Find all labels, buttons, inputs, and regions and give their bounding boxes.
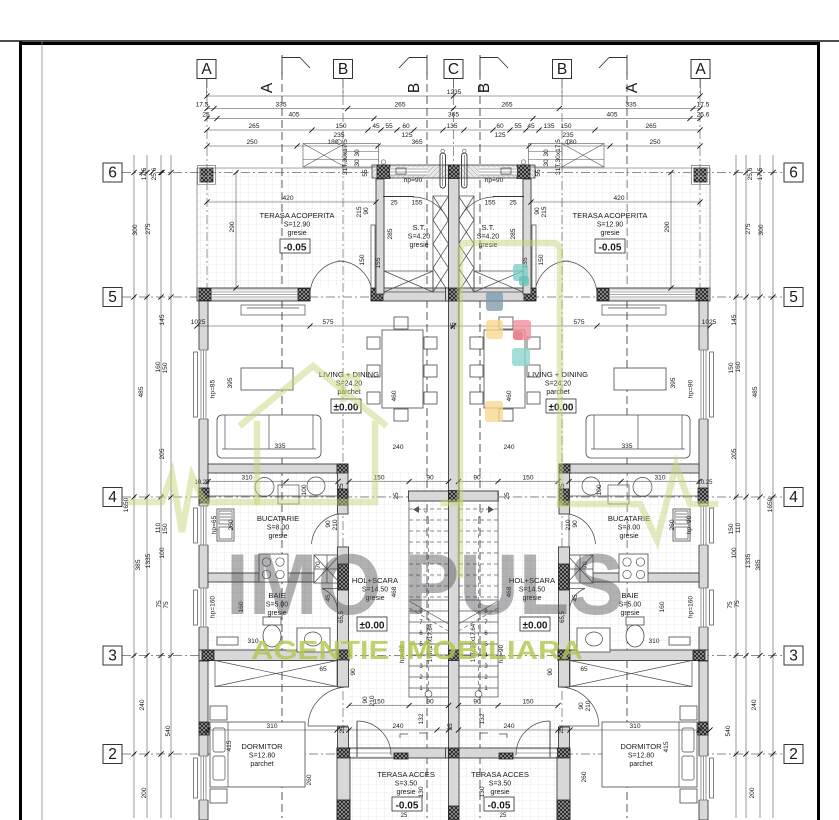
svg-text:160: 160 <box>659 601 666 612</box>
svg-text:1335: 1335 <box>745 553 752 568</box>
svg-text:25: 25 <box>509 200 517 207</box>
svg-text:17.5: 17.5 <box>697 101 710 108</box>
svg-text:25: 25 <box>338 483 345 491</box>
svg-text:100: 100 <box>596 484 603 495</box>
svg-text:420: 420 <box>613 195 624 202</box>
svg-text:25: 25 <box>393 492 400 500</box>
svg-text:275: 275 <box>745 223 752 234</box>
svg-text:hp=160: hp=160 <box>688 596 695 619</box>
svg-text:B: B <box>476 83 493 93</box>
svg-text:TERASA ACOPERITA: TERASA ACOPERITA <box>260 211 336 220</box>
svg-text:310: 310 <box>266 723 277 730</box>
svg-text:100: 100 <box>159 547 166 558</box>
svg-text:17.5: 17.5 <box>141 167 148 180</box>
svg-text:A: A <box>624 82 641 93</box>
svg-text:B: B <box>338 61 348 78</box>
svg-text:90: 90 <box>534 207 541 215</box>
svg-text:405: 405 <box>288 111 299 118</box>
svg-text:215: 215 <box>356 206 363 217</box>
svg-text:65: 65 <box>580 666 588 673</box>
svg-text:460: 460 <box>391 390 398 401</box>
svg-text:240: 240 <box>392 723 403 730</box>
svg-text:575: 575 <box>322 319 333 326</box>
svg-text:205: 205 <box>731 448 738 459</box>
svg-text:1235: 1235 <box>447 89 462 96</box>
svg-text:200: 200 <box>749 787 756 798</box>
svg-text:335: 335 <box>275 101 286 108</box>
svg-text:150: 150 <box>538 254 545 265</box>
svg-text:gresie: gresie <box>396 789 415 796</box>
svg-text:30: 30 <box>543 159 550 167</box>
svg-text:parchet: parchet <box>629 761 652 768</box>
svg-text:25.6: 25.6 <box>747 167 754 180</box>
svg-text:5: 5 <box>108 289 117 306</box>
svg-text:25.6: 25.6 <box>697 111 710 118</box>
svg-text:90: 90 <box>362 696 369 704</box>
svg-text:30: 30 <box>354 159 361 167</box>
svg-text:3: 3 <box>108 648 117 665</box>
svg-text:265: 265 <box>501 101 512 108</box>
svg-text:335: 335 <box>274 443 285 450</box>
svg-text:55: 55 <box>362 169 369 177</box>
svg-text:AGENTIE IMOBILIARA: AGENTIE IMOBILIARA <box>251 635 583 665</box>
svg-text:gresie: gresie <box>490 789 509 796</box>
svg-text:132: 132 <box>418 713 425 724</box>
svg-text:1025: 1025 <box>702 319 717 326</box>
svg-text:gresie: gresie <box>409 242 428 249</box>
svg-text:6: 6 <box>108 165 117 182</box>
svg-text:365: 365 <box>448 111 459 118</box>
svg-text:540: 540 <box>165 725 172 736</box>
svg-text:155: 155 <box>375 257 382 268</box>
svg-text:25: 25 <box>450 322 457 330</box>
svg-text:C: C <box>448 61 459 78</box>
svg-text:132: 132 <box>479 713 486 724</box>
svg-text:210: 210 <box>332 519 339 530</box>
svg-text:300: 300 <box>132 224 139 235</box>
svg-text:260: 260 <box>581 771 588 782</box>
svg-text:S.T.: S.T. <box>481 223 494 232</box>
svg-text:415: 415 <box>226 740 233 751</box>
svg-text:B: B <box>557 61 567 78</box>
svg-text:395: 395 <box>227 377 234 388</box>
svg-text:S=8.00: S=8.00 <box>267 525 289 532</box>
svg-text:B: B <box>406 83 423 93</box>
svg-text:-0.05: -0.05 <box>488 801 511 812</box>
svg-text:265: 265 <box>645 123 656 130</box>
svg-text:240: 240 <box>139 699 146 710</box>
svg-text:250: 250 <box>246 139 257 146</box>
svg-text:385: 385 <box>755 559 762 570</box>
svg-text:210: 210 <box>585 700 592 711</box>
svg-text:365: 365 <box>411 139 422 146</box>
svg-text:55: 55 <box>514 123 522 130</box>
svg-text:TERASA ACCES: TERASA ACCES <box>377 770 435 779</box>
svg-text:150: 150 <box>728 362 735 373</box>
svg-text:25: 25 <box>558 726 565 734</box>
svg-text:310: 310 <box>648 638 659 645</box>
svg-text:160: 160 <box>735 361 742 372</box>
svg-text:90: 90 <box>426 474 434 481</box>
svg-text:25: 25 <box>504 492 511 500</box>
svg-text:75: 75 <box>727 601 734 609</box>
svg-text:A: A <box>259 82 276 93</box>
svg-text:405: 405 <box>606 111 617 118</box>
svg-text:S=4.20: S=4.20 <box>477 234 499 241</box>
svg-text:150: 150 <box>522 698 533 705</box>
svg-text:240: 240 <box>503 444 514 451</box>
svg-text:S=12.80: S=12.80 <box>628 753 654 760</box>
svg-text:6: 6 <box>789 165 798 182</box>
svg-text:240: 240 <box>751 699 758 710</box>
svg-text:hp=90: hp=90 <box>686 515 693 534</box>
svg-text:S=12.90: S=12.90 <box>597 222 623 229</box>
svg-text:hp=90: hp=90 <box>688 379 695 398</box>
svg-text:30: 30 <box>543 149 550 157</box>
svg-text:100: 100 <box>731 547 738 558</box>
svg-text:65: 65 <box>319 666 327 673</box>
svg-text:TERASA ACOPERITA: TERASA ACOPERITA <box>573 211 649 220</box>
svg-text:335: 335 <box>621 443 632 450</box>
svg-text:90: 90 <box>547 668 554 676</box>
svg-text:420: 420 <box>282 195 293 202</box>
svg-text:485: 485 <box>138 386 145 397</box>
svg-text:75: 75 <box>163 601 170 609</box>
svg-text:S=4.20: S=4.20 <box>408 234 430 241</box>
svg-text:25: 25 <box>202 111 210 118</box>
svg-text:110: 110 <box>735 522 742 533</box>
svg-text:S=8.00: S=8.00 <box>618 525 640 532</box>
svg-text:5: 5 <box>789 289 798 306</box>
svg-text:25.6: 25.6 <box>151 167 158 180</box>
svg-text:260: 260 <box>228 519 235 530</box>
svg-text:240: 240 <box>392 444 403 451</box>
svg-text:S.T.: S.T. <box>412 223 425 232</box>
svg-text:385: 385 <box>135 559 142 570</box>
svg-text:45: 45 <box>527 123 535 130</box>
svg-text:17.5: 17.5 <box>757 167 764 180</box>
svg-text:335: 335 <box>625 101 636 108</box>
svg-text:240: 240 <box>503 723 514 730</box>
svg-text:135: 135 <box>446 123 457 130</box>
svg-text:BUCATARIE: BUCATARIE <box>257 514 299 523</box>
svg-text:100: 100 <box>301 484 308 495</box>
svg-text:DORMITOR: DORMITOR <box>620 742 662 751</box>
svg-text:hp=90: hp=90 <box>485 177 504 184</box>
svg-text:4: 4 <box>789 489 798 506</box>
svg-text:265: 265 <box>394 101 405 108</box>
svg-text:S=12.90: S=12.90 <box>284 222 310 229</box>
svg-text:150: 150 <box>335 123 346 130</box>
svg-text:285: 285 <box>387 228 394 239</box>
svg-text:90: 90 <box>473 698 481 705</box>
svg-text:31T,30x17.5: 31T,30x17.5 <box>555 139 562 175</box>
svg-text:-0.05: -0.05 <box>396 801 419 812</box>
svg-text:gresie: gresie <box>600 230 619 237</box>
svg-text:150: 150 <box>560 123 571 130</box>
svg-text:DORMITOR: DORMITOR <box>241 742 283 751</box>
svg-text:90: 90 <box>363 207 370 215</box>
svg-text:25: 25 <box>401 813 408 819</box>
svg-text:150: 150 <box>728 523 735 534</box>
svg-text:S=3.50: S=3.50 <box>395 781 417 788</box>
svg-text:160: 160 <box>155 361 162 372</box>
svg-text:10.25: 10.25 <box>697 480 713 486</box>
svg-text:540: 540 <box>725 725 732 736</box>
svg-text:3: 3 <box>789 648 798 665</box>
svg-text:60: 60 <box>402 123 410 130</box>
svg-text:285: 285 <box>510 228 517 239</box>
svg-text:150: 150 <box>162 362 169 373</box>
svg-text:130: 130 <box>418 786 425 797</box>
svg-text:210: 210 <box>565 519 572 530</box>
svg-text:310: 310 <box>241 474 252 481</box>
svg-text:130: 130 <box>479 786 486 797</box>
svg-text:S=12.80: S=12.80 <box>249 753 275 760</box>
svg-text:75: 75 <box>156 600 163 608</box>
svg-text:200: 200 <box>141 787 148 798</box>
svg-text:90: 90 <box>426 698 434 705</box>
svg-text:150: 150 <box>162 523 169 534</box>
svg-text:hp=90: hp=90 <box>404 177 423 184</box>
svg-text:250: 250 <box>649 139 660 146</box>
svg-text:90: 90 <box>325 520 332 528</box>
svg-text:485: 485 <box>752 386 759 397</box>
svg-text:290: 290 <box>229 221 236 232</box>
svg-text:2: 2 <box>108 746 117 763</box>
svg-text:hp=65: hp=65 <box>211 515 218 534</box>
svg-text:395: 395 <box>670 377 677 388</box>
svg-text:155: 155 <box>411 200 422 207</box>
svg-text:30: 30 <box>354 149 361 157</box>
svg-text:1025: 1025 <box>191 319 206 326</box>
svg-text:55: 55 <box>535 169 542 177</box>
svg-text:415: 415 <box>663 741 670 752</box>
svg-text:260: 260 <box>306 774 313 785</box>
svg-text:gresie: gresie <box>287 230 306 237</box>
svg-text:260: 260 <box>669 519 676 530</box>
svg-text:310: 310 <box>629 723 640 730</box>
svg-text:-0.05: -0.05 <box>599 243 622 254</box>
svg-text:265: 265 <box>248 123 259 130</box>
svg-text:1335: 1335 <box>145 553 152 568</box>
svg-text:55: 55 <box>385 123 393 130</box>
svg-text:460: 460 <box>506 390 513 401</box>
svg-text:145: 145 <box>731 314 738 325</box>
svg-text:145: 145 <box>159 314 166 325</box>
svg-text:110: 110 <box>155 522 162 533</box>
svg-text:17.5: 17.5 <box>196 101 209 108</box>
svg-text:25: 25 <box>500 813 507 819</box>
svg-text:210: 210 <box>369 695 376 706</box>
svg-text:90: 90 <box>572 520 579 528</box>
svg-text:25: 25 <box>447 723 454 731</box>
svg-text:parchet: parchet <box>250 761 273 768</box>
svg-text:4: 4 <box>108 489 117 506</box>
svg-text:hp=160: hp=160 <box>210 596 217 619</box>
svg-text:215: 215 <box>541 206 548 217</box>
svg-text:205: 205 <box>159 448 166 459</box>
svg-text:A: A <box>695 61 706 78</box>
svg-text:150: 150 <box>359 254 366 265</box>
svg-text:90: 90 <box>473 474 481 481</box>
svg-text:2: 2 <box>789 746 798 763</box>
svg-text:A: A <box>201 61 212 78</box>
svg-text:290: 290 <box>664 221 671 232</box>
svg-text:hp=85: hp=85 <box>210 379 217 398</box>
svg-text:75: 75 <box>734 600 741 608</box>
svg-text:300: 300 <box>758 224 765 235</box>
svg-text:IMO PULS: IMO PULS <box>226 537 624 633</box>
svg-text:575: 575 <box>573 319 584 326</box>
svg-text:90: 90 <box>350 668 357 676</box>
svg-text:135: 135 <box>543 123 554 130</box>
svg-text:155: 155 <box>484 200 495 207</box>
svg-text:310: 310 <box>654 474 665 481</box>
svg-text:180: 180 <box>327 139 338 146</box>
svg-text:25: 25 <box>390 200 398 207</box>
svg-text:125: 125 <box>494 132 505 139</box>
svg-text:45: 45 <box>372 123 380 130</box>
svg-text:25: 25 <box>339 726 346 734</box>
svg-text:150: 150 <box>522 474 533 481</box>
svg-text:-0.05: -0.05 <box>284 243 307 254</box>
svg-text:31T,30x17.5: 31T,30x17.5 <box>342 139 349 175</box>
svg-text:90: 90 <box>578 702 585 710</box>
svg-text:S=3.50: S=3.50 <box>489 781 511 788</box>
svg-text:275: 275 <box>145 223 152 234</box>
svg-text:60: 60 <box>496 123 504 130</box>
svg-text:TERASA ACCES: TERASA ACCES <box>471 770 529 779</box>
